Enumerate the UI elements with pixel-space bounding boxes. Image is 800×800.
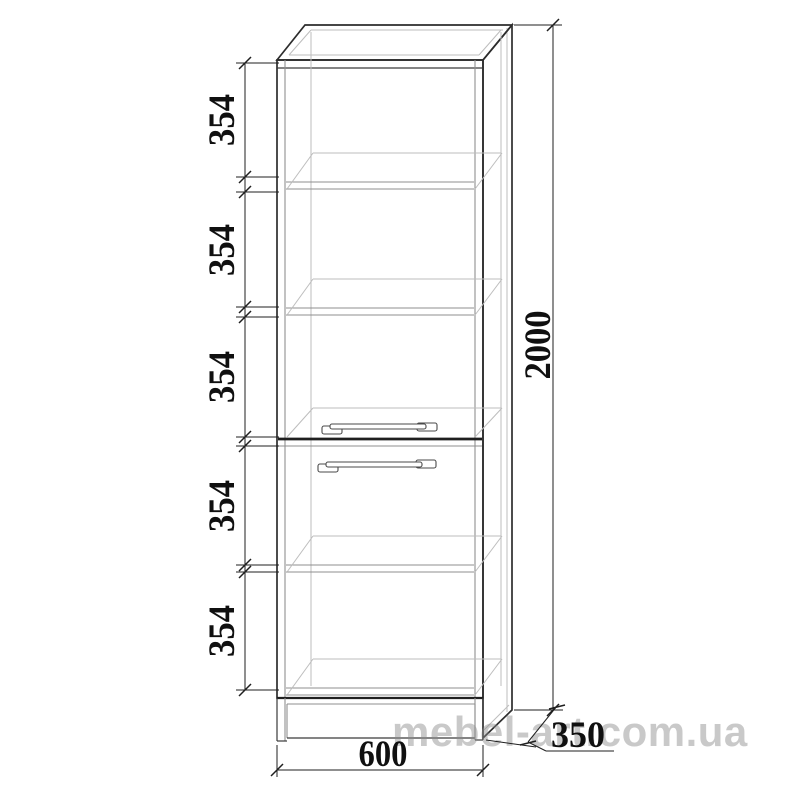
dim-label-section-2: 354 [202, 224, 243, 276]
cabinet-dimension-drawing: mebel-art.com.ua 354 354 354 354 354 [0, 0, 800, 800]
cabinet-front-face [277, 32, 501, 698]
left-dimension-chain: 354 354 354 354 354 [202, 57, 279, 696]
cabinet [277, 25, 512, 741]
door-handle-upper [322, 423, 437, 434]
height-dimension-chain: 2000 [514, 19, 562, 716]
dim-label-total-height: 2000 [518, 311, 559, 380]
dim-label-section-5: 354 [202, 605, 243, 657]
drawing-page: mebel-art.com.ua 354 354 354 354 354 [0, 0, 800, 800]
dim-label-section-4: 354 [202, 480, 243, 532]
dim-label-section-3: 354 [202, 351, 243, 403]
dim-label-section-1: 354 [202, 94, 243, 146]
dim-label-depth: 350 [551, 715, 605, 756]
cabinet-top-face [277, 25, 512, 60]
cabinet-side-face [483, 25, 512, 738]
door-handle-lower [318, 460, 436, 472]
dim-label-width: 600 [359, 734, 408, 775]
